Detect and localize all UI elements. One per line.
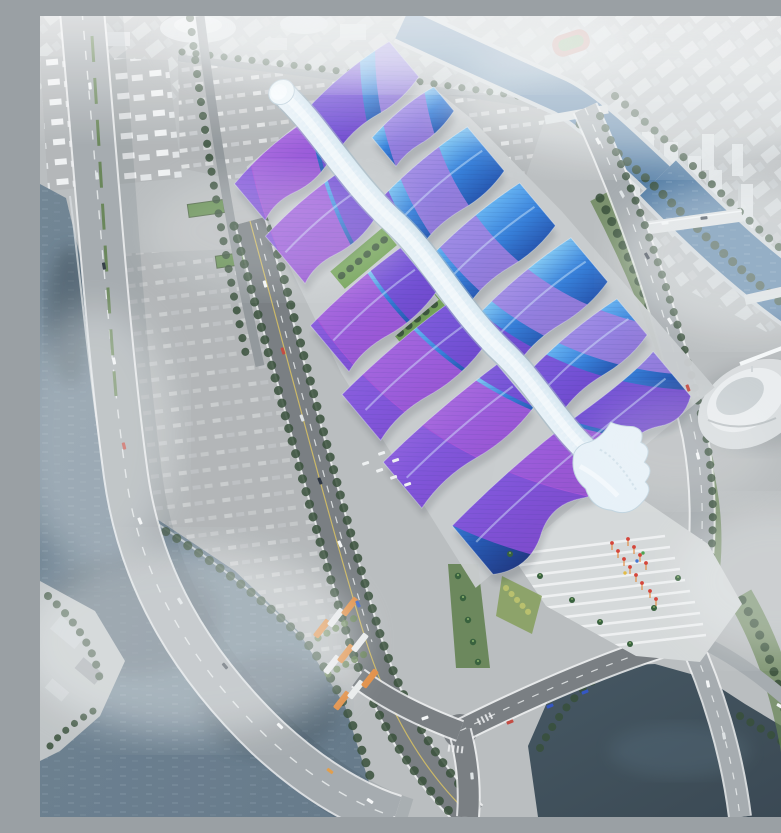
scene-canvas: Aerial rendering of a riverside exhibiti…	[40, 16, 781, 817]
aerial-rendering: Aerial rendering of a riverside exhibiti…	[40, 16, 781, 817]
haze-overlay	[40, 16, 781, 817]
